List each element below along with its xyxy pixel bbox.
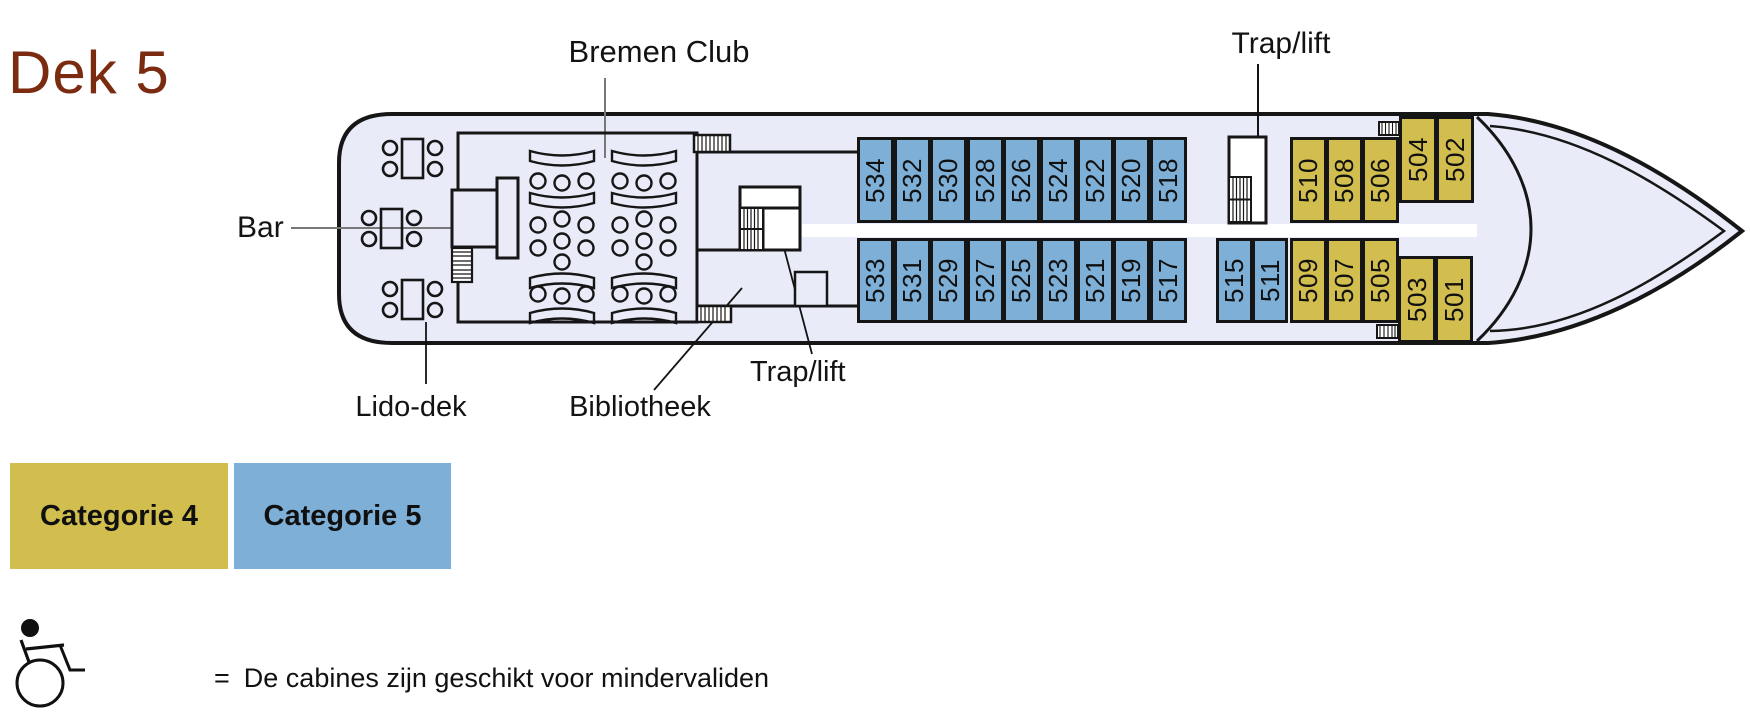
cabin-523: 523 xyxy=(1040,238,1077,323)
wheelchair-note-text: De cabines zijn geschikt voor mindervali… xyxy=(244,663,769,694)
cabin-number: 510 xyxy=(1293,158,1324,203)
cabin-525: 525 xyxy=(1003,238,1040,323)
cabin-520: 520 xyxy=(1113,137,1150,223)
cabin-number: 530 xyxy=(933,158,964,203)
wheelchair-icon xyxy=(17,619,85,706)
cabin-515: 515 xyxy=(1216,238,1253,323)
cabin-number: 518 xyxy=(1153,158,1184,203)
deck-plan-svg xyxy=(0,0,1750,712)
cabin-509: 509 xyxy=(1290,238,1327,323)
lift-shaft-stairs xyxy=(740,208,763,250)
cabin-number: 534 xyxy=(860,158,891,203)
cabin-529: 529 xyxy=(930,238,967,323)
cabin-528: 528 xyxy=(967,137,1004,223)
cabin-532: 532 xyxy=(894,137,931,223)
legend-categorie-4: Categorie 4 xyxy=(10,463,228,569)
cabin-number: 523 xyxy=(1043,258,1074,303)
label-trap-lift-bottom: Trap/lift xyxy=(750,356,846,389)
cabin-number: 503 xyxy=(1402,277,1433,322)
cabin-531: 531 xyxy=(894,238,931,323)
cabin-518: 518 xyxy=(1150,137,1187,223)
cabin-number: 505 xyxy=(1365,258,1396,303)
cabin-504: 504 xyxy=(1399,116,1437,203)
cabin-number: 529 xyxy=(933,258,964,303)
cabin-number: 528 xyxy=(970,158,1001,203)
stairs-club-top xyxy=(694,135,730,152)
cabin-number: 533 xyxy=(860,258,891,303)
cabin-517: 517 xyxy=(1150,238,1187,323)
cabin-502: 502 xyxy=(1436,116,1474,203)
label-bibliotheek: Bibliotheek xyxy=(565,391,715,424)
label-bar: Bar xyxy=(237,211,284,245)
cabin-533: 533 xyxy=(857,238,894,323)
stairs-above-506 xyxy=(1379,122,1399,135)
cabin-526: 526 xyxy=(1003,137,1040,223)
cabin-number: 526 xyxy=(1006,158,1037,203)
cabin-510: 510 xyxy=(1290,137,1327,223)
legend-categorie-5-label: Categorie 5 xyxy=(264,500,422,533)
cabin-527: 527 xyxy=(967,238,1004,323)
cabin-number: 521 xyxy=(1080,258,1111,303)
cabin-507: 507 xyxy=(1326,238,1363,323)
cabin-number: 508 xyxy=(1329,158,1360,203)
label-trap-lift-top: Trap/lift xyxy=(1224,27,1338,61)
cabin-number: 502 xyxy=(1440,137,1471,182)
cabin-506: 506 xyxy=(1362,137,1399,223)
cabin-522: 522 xyxy=(1077,137,1114,223)
cabin-number: 509 xyxy=(1293,258,1324,303)
label-lido-dek: Lido-dek xyxy=(351,391,471,424)
cabin-number: 525 xyxy=(1006,258,1037,303)
cabin-511: 511 xyxy=(1252,238,1288,323)
cabin-505: 505 xyxy=(1362,238,1399,323)
cabin-501: 501 xyxy=(1435,256,1473,343)
cabin-number: 520 xyxy=(1116,158,1147,203)
cabin-508: 508 xyxy=(1326,137,1363,223)
cabin-number: 531 xyxy=(897,258,928,303)
cabin-534: 534 xyxy=(857,137,894,223)
cabin-number: 511 xyxy=(1255,259,1286,302)
legend-categorie-5: Categorie 5 xyxy=(234,463,451,569)
equals-sign: = xyxy=(214,663,230,694)
trap-lift-room-stairs xyxy=(1229,177,1251,222)
trap-lift-room xyxy=(1229,137,1266,223)
corridor xyxy=(802,224,1477,237)
cabin-number: 504 xyxy=(1403,137,1434,182)
cabin-number: 524 xyxy=(1043,158,1074,203)
bar-stairs xyxy=(452,248,472,282)
cabin-number: 527 xyxy=(970,258,1001,303)
stairs-club-bottom xyxy=(697,306,731,322)
cabin-number: 506 xyxy=(1365,158,1396,203)
legend-categorie-4-label: Categorie 4 xyxy=(40,500,198,533)
stairs-below-505 xyxy=(1377,325,1398,338)
cabin-503: 503 xyxy=(1398,256,1436,343)
deck-plan-page: 5345325305285265245225205185105085065045… xyxy=(0,0,1750,712)
label-bremen-club: Bremen Club xyxy=(559,34,759,70)
cabin-number: 522 xyxy=(1080,158,1111,203)
cabin-number: 507 xyxy=(1329,258,1360,303)
cabin-519: 519 xyxy=(1113,238,1150,323)
library-annex xyxy=(795,272,827,306)
cabin-521: 521 xyxy=(1077,238,1114,323)
wheelchair-note: = De cabines zijn geschikt voor minderva… xyxy=(214,663,769,694)
cabin-number: 519 xyxy=(1116,258,1147,303)
cabin-number: 501 xyxy=(1439,277,1470,322)
deck-title: Dek 5 xyxy=(8,38,170,107)
cabin-number: 532 xyxy=(897,158,928,203)
lift-shaft xyxy=(740,187,800,250)
cabin-number: 517 xyxy=(1153,258,1184,303)
cabin-number: 515 xyxy=(1219,258,1250,303)
cabin-530: 530 xyxy=(930,137,967,223)
bar-counter xyxy=(452,178,518,258)
cabin-524: 524 xyxy=(1040,137,1077,223)
